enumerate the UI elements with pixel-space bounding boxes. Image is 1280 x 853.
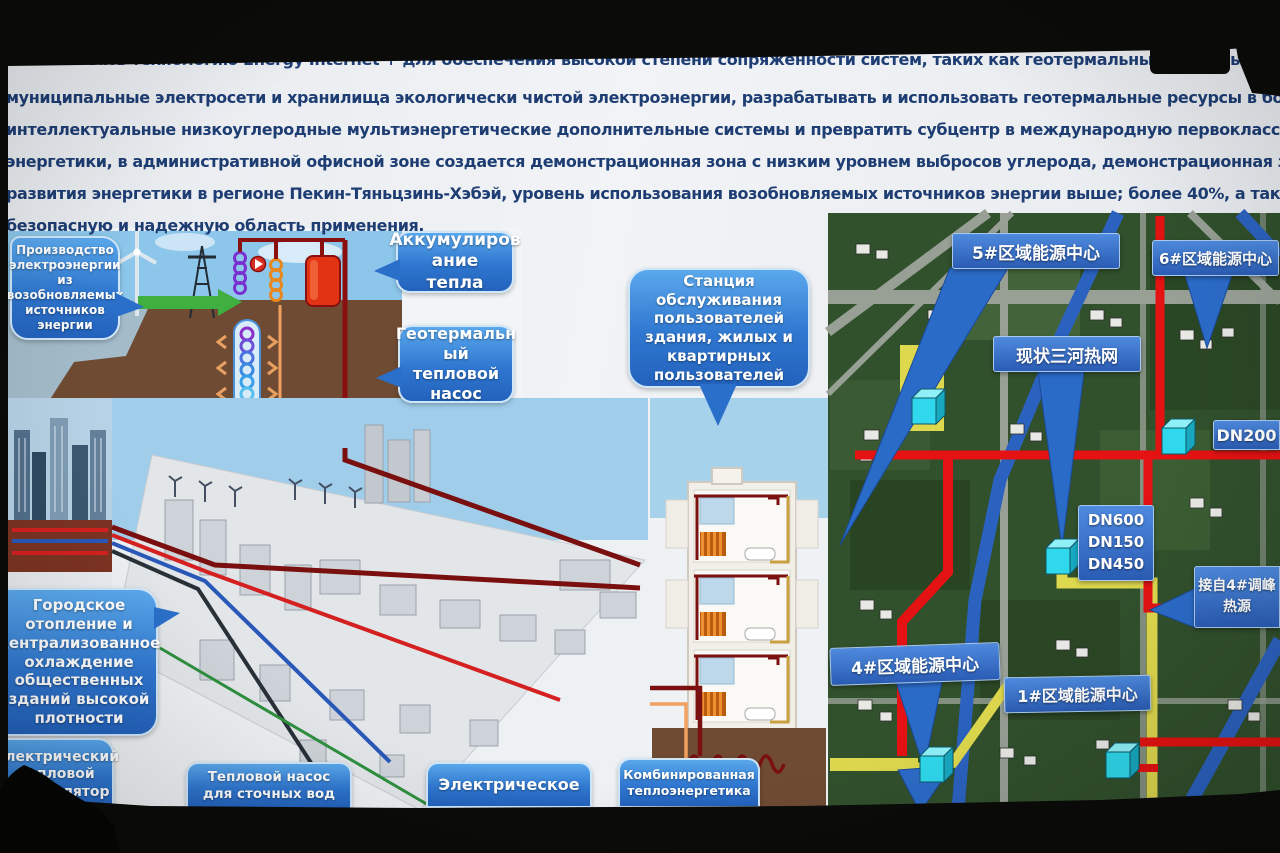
bezel-blob <box>1150 40 1230 74</box>
screen-photo: использовать технологию Energy Internet … <box>0 0 1280 853</box>
screen-bezel-overlay <box>0 0 1280 853</box>
